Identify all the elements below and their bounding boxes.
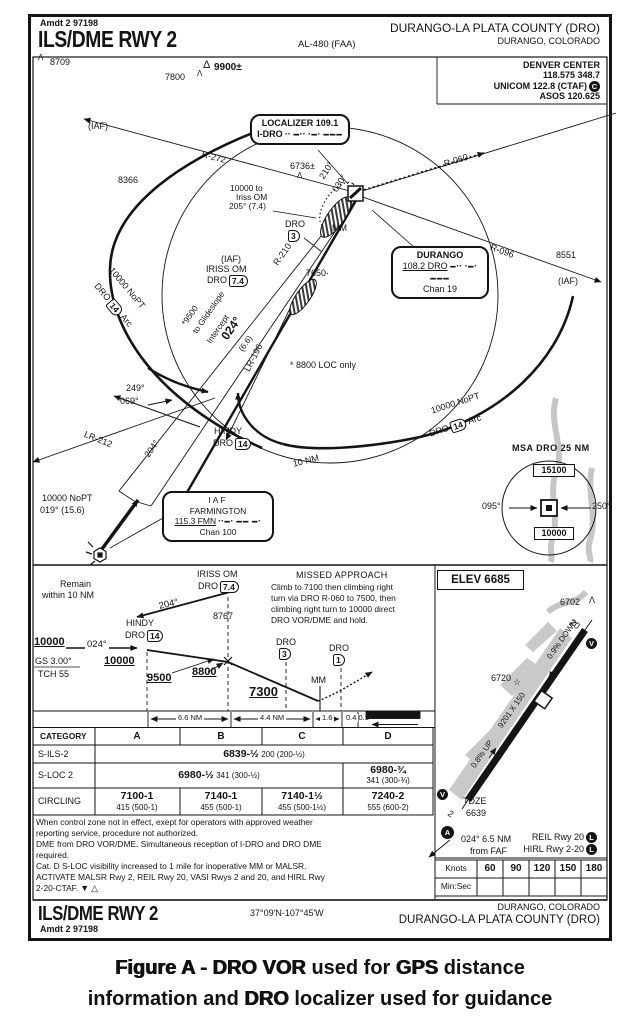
speed-150: 150	[560, 863, 577, 874]
iaf-northwest-label: (IAF)	[88, 122, 108, 132]
msa-lower-altitude: 10000	[534, 527, 574, 540]
obstacle-8551: 8551	[556, 251, 576, 261]
caption-text: distance	[438, 957, 525, 979]
morse-code-fmn: ▪▪▬▪ ▬▬ ▬▪	[218, 519, 261, 525]
pilot-controlled-lighting-icon: L	[586, 844, 597, 855]
durango-vor-chan: Chan 19	[397, 284, 483, 295]
threshold-crossing-height: TCH 55	[38, 670, 69, 680]
obstacle-8366: 8366	[118, 176, 138, 186]
vasi-rwy20-badge-icon: V	[586, 638, 597, 649]
s-ils-detail: 200 (200-½)	[261, 750, 305, 759]
durango-vor-freq: 108.2 DRO ▬▪▪ ▪▬▪ ▬▬▬	[397, 261, 483, 284]
speed-knots-label: Knots	[445, 864, 466, 873]
farmington-feeder-course: 019° (15.6)	[40, 506, 85, 516]
localizer-freq-line: LOCALIZER 109.1	[256, 118, 344, 129]
durango-vor-box: DURANGO 108.2 DRO ▬▪▪ ▪▬▪ ▬▬▬ Chan 19	[391, 246, 489, 299]
faf-bearing-arrow	[429, 840, 450, 857]
profile-dro3-name: DRO	[276, 638, 296, 648]
s-ils-value: 6839-½	[223, 748, 259, 760]
missed-approach-title: MISSED APPROACH	[296, 571, 388, 581]
obstacle-7650: 7650·	[306, 269, 329, 279]
missed-approach-line2: turn via DRO R-060 to 7500, then	[271, 594, 396, 603]
loc-only-note: * 8800 LOC only	[290, 361, 356, 371]
obstacle-icon: Λ	[38, 54, 43, 63]
circling-c-value: 7140-1½	[281, 791, 322, 803]
circling-a-value: 7100-1	[121, 791, 154, 803]
figure-caption-line2: information and DRO localizer used for g…	[0, 984, 640, 1015]
airport-name: DURANGO-LA PLATA COUNTY (DRO)	[390, 22, 600, 35]
obstacle-icon: Λ	[197, 70, 202, 79]
distance-1-6: 1.6	[320, 714, 334, 722]
caption-dro-label: DRO	[244, 988, 288, 1010]
arc-to-course-arrow-west	[148, 368, 208, 392]
iaf-northeast-label: (IAF)	[558, 277, 578, 287]
footer-airport-name: DURANGO-LA PLATA COUNTY (DRO)	[399, 914, 600, 927]
malsr-badge-icon: A	[441, 826, 454, 839]
caption-text: information and	[88, 988, 245, 1010]
localizer-ident-line: I-DRO ▪▪ ▬▪▪ ▪▬▪ ▬▬▬	[256, 129, 344, 140]
msa-bearing-250: 250°	[592, 502, 611, 512]
figure-caption: Figure A - DRO VOR used for GPS distance…	[0, 953, 640, 1015]
airport-sketch-graphics	[429, 620, 592, 857]
procedure-turn-069: 069°	[120, 397, 139, 407]
faf-distance-note-line1: 024° 6.5 NM	[461, 835, 511, 845]
iriss-dme-value: 7.4	[229, 275, 248, 287]
col-d: D	[384, 731, 391, 742]
vasi-rwy2-badge-icon: V	[437, 789, 448, 800]
obstacle-icon: Λ	[297, 172, 302, 181]
takeoff-minimums-triangle-icon: ▼	[80, 884, 89, 894]
s-loc-minimums-abc: 6980-½ 341 (300-½)	[178, 770, 260, 782]
iriss-outer-marker	[285, 276, 321, 318]
dme-arc-east	[283, 296, 573, 448]
row-s-loc-label: S-LOC 2	[38, 771, 73, 781]
speed-180: 180	[586, 863, 603, 874]
tdze-label: TDZE	[463, 797, 487, 807]
star-icon: ☆	[513, 678, 521, 688]
distance-0-1: 0.1	[359, 714, 369, 722]
sketch-spot-6720: 6720	[491, 674, 511, 684]
hirl-text: HIRL Rwy 2-20	[523, 845, 584, 855]
missed-approach-line1: Climb to 7100 then climbing right	[271, 583, 393, 592]
distance-4-4: 4.4 NM	[258, 714, 286, 722]
profile-iriss-dme: 7.4	[220, 581, 239, 593]
profile-hindy-name: HINDY	[126, 619, 154, 629]
farmington-iaf-label: IAF	[168, 495, 268, 506]
col-c: C	[298, 731, 305, 742]
lead-radial-196-line	[226, 292, 298, 440]
msa-upper-altitude: 15100	[533, 464, 575, 477]
hindy-fix-row: DRO 14	[213, 438, 251, 450]
runway-2-20	[468, 630, 585, 800]
circling-b-detail: 455 (500-1)	[200, 804, 241, 813]
profile-runway-bar	[366, 712, 420, 719]
footer-amdt: Amdt 2 97198	[40, 925, 98, 935]
pilot-controlled-lighting-icon: L	[586, 832, 597, 843]
row-s-ils-label: S-ILS-2	[38, 750, 69, 760]
obstacle-9900: 9900±	[214, 62, 242, 73]
hindy-name-label: HINDY	[214, 427, 242, 437]
airport-symbol	[348, 186, 363, 201]
faf-distance-note-line2: from FAF	[470, 847, 507, 857]
iriss-fix-ident: DRO	[207, 276, 227, 286]
approach-plate-page: Amdt 2 97198 ILS/DME RWY 2 AL-480 (FAA) …	[0, 0, 640, 1031]
missed-approach-line4: DRO VOR/DME and hold.	[271, 616, 368, 625]
caption-text: used for	[306, 957, 396, 979]
farmington-vor-chan: Chan 100	[168, 527, 268, 538]
note-line1: When control zone not in effect, exept f…	[36, 818, 313, 827]
msa-bearing-095: 095°	[482, 502, 501, 512]
profile-dro1-name: DRO	[329, 644, 349, 654]
note-line4: required.	[36, 851, 69, 860]
note-line7: 2-20-CTAF. ▼ △	[36, 884, 98, 894]
note-line7-text: 2-20-CTAF.	[36, 884, 78, 893]
col-category: CATEGORY	[40, 732, 87, 741]
glideslope-angle: GS 3.00°	[35, 657, 72, 667]
middle-marker-label: MM	[332, 224, 347, 234]
circling-a-detail: 415 (500-1)	[116, 804, 157, 813]
hindy-fix-ident: DRO	[213, 439, 233, 449]
profile-10000-mid: 10000	[104, 655, 135, 667]
alternate-minimums-triangle-icon: △	[91, 884, 98, 894]
profile-missed-dotted	[318, 672, 372, 701]
obstacle-6736: 6736±	[290, 162, 315, 172]
circling-c-detail: 455 (500-1½)	[278, 804, 326, 813]
profile-7300-altitude: 7300	[249, 685, 278, 699]
airport-elevation-box: ELEV 6685	[437, 570, 524, 590]
speed-90: 90	[510, 863, 521, 874]
note-205-bearing: 205° (7.4)	[229, 202, 266, 211]
note-line5: Cat. D S-LOC visibility increased to 1 m…	[36, 862, 306, 871]
profile-glidepath	[147, 650, 318, 701]
farmington-feeder-altitude: 10000 NoPT	[42, 494, 93, 504]
msa-title: MSA DRO 25 NM	[512, 444, 590, 454]
iriss-name-label: IRISS OM	[206, 265, 247, 275]
distance-0-4: 0.4	[344, 714, 358, 722]
obstacle-7800: 7800	[165, 73, 185, 83]
s-loc-d-detail: 341 (300-¾)	[366, 777, 410, 786]
reil-note: REIL Rwy 20 L	[532, 832, 597, 843]
lead-radial-212-line	[33, 398, 215, 462]
profile-dro1-box: 1	[333, 654, 345, 666]
dro-3-fix-box: 3	[288, 230, 300, 242]
center-freq-value: 118.575 348.7	[543, 71, 600, 81]
farmington-vor-name: FARMINGTON	[168, 506, 268, 517]
morse-code-idro: ▪▪ ▬▪▪ ▪▬▪ ▬▬▬	[285, 132, 343, 138]
figure-caption-line1: Figure A - DRO VOR used for GPS distance	[0, 953, 640, 984]
footer-procedure-title: ILS/DME RWY 2	[38, 903, 158, 925]
col-b: B	[217, 731, 224, 742]
caption-text: localizer used for guidance	[289, 988, 552, 1010]
footer-city: DURANGO, COLORADO	[497, 903, 600, 913]
dro-3-fix-name: DRO	[285, 220, 305, 230]
hirl-note: HIRL Rwy 2-20 L	[523, 844, 597, 855]
speed-120: 120	[534, 863, 551, 874]
profile-024-course: 024°	[85, 640, 109, 650]
profile-iriss-fix-row: DRO 7.4	[198, 581, 239, 593]
note-line6: ACTIVATE MALSR Rwy 2, REIL Rwy 20, VASI …	[36, 873, 325, 882]
reil-text: REIL Rwy 20	[532, 833, 584, 843]
unicom-text: UNICOM 122.8 (CTAF)	[494, 82, 587, 92]
s-ils-minimums: 6839-½ 200 (200-½)	[223, 749, 305, 761]
profile-dro1-dme: 1	[333, 654, 345, 666]
note-line3: DME from DRO VOR/DME. Simultaneous recep…	[36, 840, 322, 849]
profile-iriss-name: IRISS OM	[197, 570, 238, 580]
caption-figure-label: Figure A - DRO VOR	[115, 957, 306, 979]
profile-8767-altitude: 8767	[213, 612, 233, 622]
iriss-fix-row: DRO 7.4	[207, 275, 248, 287]
profile-8800-altitude: 8800	[192, 666, 216, 678]
note-line2: reporting service, procedure not authori…	[36, 829, 198, 838]
profile-9500-altitude: 9500	[147, 672, 171, 684]
caption-gps-label: GPS	[396, 957, 438, 979]
speed-minsec-label: Min:Sec	[441, 882, 471, 891]
row-circling-label: CIRCLING	[38, 797, 81, 807]
profile-hindy-ident: DRO	[125, 631, 145, 641]
profile-10000-left: 10000	[34, 636, 65, 648]
farmington-feeder-arrow	[102, 500, 138, 549]
durango-vor-name: DURANGO	[397, 250, 483, 261]
chart-al-number: AL-480 (FAA)	[298, 40, 356, 50]
tdze-value: 6639	[466, 809, 486, 819]
remain-note-line1: Remain	[60, 580, 91, 590]
procedure-title: ILS/DME RWY 2	[38, 27, 177, 52]
distance-6-6: 6.6 NM	[176, 714, 204, 722]
speed-60: 60	[484, 863, 495, 874]
s-loc-detail: 341 (300-½)	[216, 771, 260, 780]
airport-city: DURANGO, COLORADO	[497, 37, 600, 47]
profile-iriss-ident: DRO	[198, 582, 218, 592]
dro-3-dme-value: 3	[288, 230, 300, 242]
circling-d-value: 7240-2	[372, 791, 405, 803]
sketch-obstacle-6702: 6702	[560, 598, 580, 608]
profile-hindy-dme: 14	[147, 630, 163, 642]
footer-coordinates: 37°09'N-107°45'W	[250, 909, 324, 919]
hindy-dme-value: 14	[235, 438, 251, 450]
obstacle-big-icon: Δ	[203, 59, 210, 71]
circling-d-detail: 555 (600-2)	[367, 804, 408, 813]
profile-dro3-dme: 3	[279, 648, 291, 660]
obstacle-8709: 8709	[50, 58, 70, 68]
profile-dro3-box: 3	[279, 648, 291, 660]
asos-freq: ASOS 120.625	[539, 92, 600, 102]
farmington-vor-freq: 115.3 FMN ▪▪▬▪ ▬▬ ▬▪	[168, 516, 268, 527]
obstacle-icon: Λ	[589, 596, 595, 606]
localizer-freq-box: LOCALIZER 109.1 I-DRO ▪▪ ▬▪▪ ▪▬▪ ▬▬▬	[250, 114, 350, 145]
procedure-turn-inbound	[148, 400, 172, 405]
profile-hindy-fix-row: DRO 14	[125, 630, 163, 642]
s-loc-value: 6980-½	[178, 769, 214, 781]
farmington-vor-box: IAF FARMINGTON 115.3 FMN ▪▪▬▪ ▬▬ ▬▪ Chan…	[162, 491, 274, 542]
missed-approach-line3: climbing right turn to 10000 direct	[271, 605, 395, 614]
s-loc-d-value: 6980-¾	[370, 765, 406, 777]
procedure-turn-249: 249°	[126, 384, 145, 394]
circling-b-value: 7140-1	[205, 791, 238, 803]
remain-note-line2: within 10 NM	[42, 591, 94, 601]
col-a: A	[133, 731, 140, 742]
profile-mm-label: MM	[311, 676, 326, 686]
